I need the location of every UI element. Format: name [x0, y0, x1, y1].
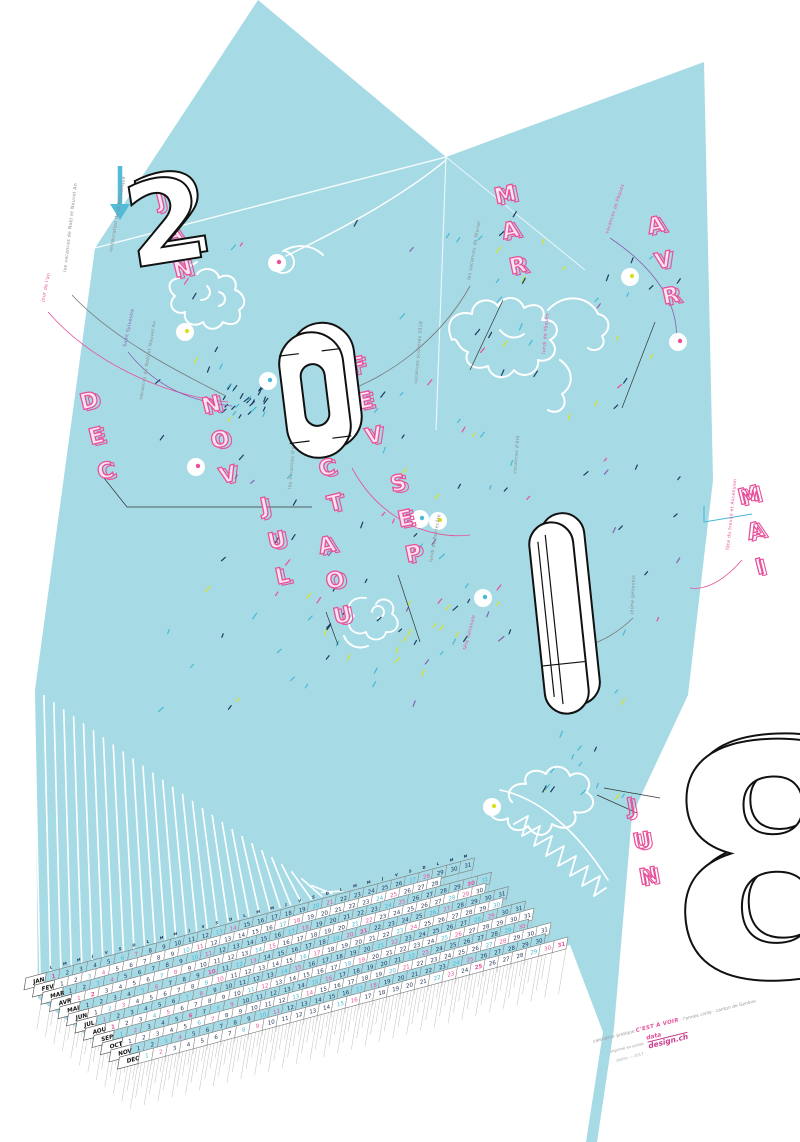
badge-circle — [259, 372, 277, 390]
badge-circle — [669, 333, 687, 351]
grid-extension — [558, 949, 566, 994]
grid-extension — [531, 956, 539, 1001]
badge-circle — [474, 589, 492, 607]
badge-circle — [268, 254, 286, 272]
badge-circle — [187, 458, 205, 476]
annotation-label: les vacances de Noël et Nouvel An — [62, 183, 79, 273]
month-letters-MAI: MMAAII — [735, 481, 783, 583]
grid-extension — [545, 953, 553, 998]
badge-circle — [176, 323, 194, 341]
badge-circle — [621, 268, 639, 286]
poster-canvas: JJAANNFFEEVVMMAARRAAVVRRMMAAIIJJUUNNJJUU… — [0, 0, 800, 1142]
badge-circle — [483, 798, 501, 816]
annotation-label: jour de l'an — [40, 272, 52, 303]
poster-scene: JJAANNFFEEVVMMAARRAAVVRRMMAAIIJJUUNNJJUU… — [0, 0, 800, 1142]
annotation-label: fête du travail et Ascension — [724, 478, 738, 550]
